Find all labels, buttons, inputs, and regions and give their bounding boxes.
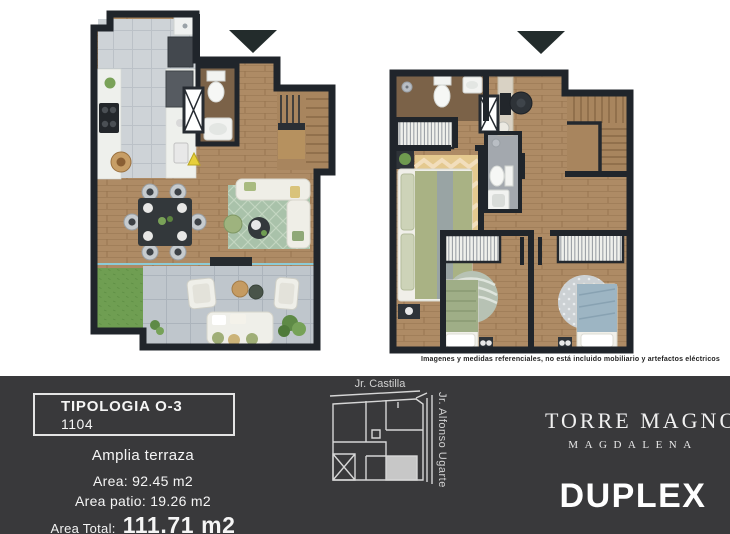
side-table [232, 281, 248, 297]
door-leaf [522, 153, 525, 179]
elevator [184, 88, 203, 132]
stove-icon [99, 103, 119, 133]
site-map-drawing [328, 390, 434, 486]
street-line [427, 395, 432, 484]
closet [558, 232, 623, 262]
total-line: Area Total: 111.71 m2 [23, 512, 263, 534]
site-map: Jr. Castilla Jr. Alfonso Ugarte [322, 377, 472, 527]
total-label: Area Total: [50, 521, 115, 534]
info-footer: TIPOLOGIA O-3 1104 Amplia terraza Area: … [0, 376, 730, 534]
typology-title: TIPOLOGIA O-3 [61, 398, 233, 415]
brand-block: TORRE MAGNO MAGDALENA DUPLEX [545, 376, 721, 516]
down-triangle-icon [517, 31, 565, 54]
toilet-icon [490, 166, 504, 186]
street-label-right: Jr. Alfonso Ugarte [436, 392, 448, 502]
pillow [401, 174, 414, 230]
pillow [581, 334, 613, 347]
fridge-icon [168, 37, 193, 67]
unit-details: Amplia terraza Area: 92.45 m2 Area patio… [23, 447, 263, 534]
plant-icon [105, 78, 116, 89]
closet [445, 235, 500, 262]
highlighted-unit [386, 456, 417, 480]
closet [397, 121, 453, 148]
street-line [330, 391, 420, 396]
floor-plan-level-1 [90, 7, 336, 351]
living-room [224, 179, 310, 249]
x-cross-box-icon [333, 454, 355, 480]
grass-patch [97, 268, 143, 331]
pillow [446, 334, 475, 347]
door-leaf [520, 237, 524, 265]
patio-line: Area patio: 19.26 m2 [23, 493, 263, 509]
street-label-top: Jr. Castilla [326, 378, 434, 390]
door-leaf [538, 237, 542, 265]
brand-name: TORRE MAGNO [545, 408, 721, 434]
toilet-icon [434, 76, 451, 85]
total-value: 111.71 m2 [123, 512, 236, 534]
flyer-canvas: Imagenes y medidas referenciales, no est… [0, 0, 730, 534]
pouf [224, 215, 242, 233]
planter [210, 257, 252, 266]
side-table [249, 285, 263, 299]
shower-icon [492, 139, 500, 147]
stairs [277, 90, 332, 170]
floor-plan-level-2 [387, 67, 635, 356]
unit-type: DUPLEX [545, 477, 721, 516]
brand-district: MAGDALENA [545, 439, 721, 451]
typology-box: TIPOLOGIA O-3 1104 [33, 393, 235, 436]
feature-text: Amplia terraza [23, 447, 263, 464]
area-line: Area: 92.45 m2 [23, 473, 263, 489]
stairs [565, 95, 630, 177]
disclaimer-text: Imagenes y medidas referenciales, no est… [421, 356, 720, 363]
pillow [401, 234, 414, 290]
plant-icon [399, 153, 411, 165]
monitor-icon [500, 93, 511, 115]
unit-number: 1104 [61, 416, 233, 432]
toilet-icon [207, 71, 225, 81]
